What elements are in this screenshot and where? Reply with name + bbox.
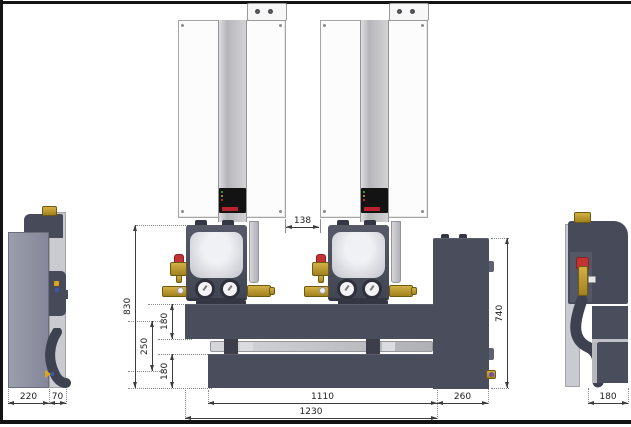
screw-icon — [421, 24, 424, 27]
screw-icon — [279, 210, 282, 213]
dimension-label: 260 — [437, 393, 488, 402]
led-icon — [221, 199, 223, 201]
pressure-gauge-icon — [362, 279, 382, 299]
dimension-label: 1230 — [185, 408, 437, 417]
screw-icon — [421, 210, 424, 213]
pump-window — [190, 232, 243, 278]
page-border-top — [0, 1, 631, 4]
dimension-label: 830 — [123, 225, 133, 388]
page-border-bottom — [0, 420, 631, 424]
unit-body — [8, 232, 49, 388]
dimension-label: 1110 — [208, 393, 437, 402]
dimension-label: 220 — [8, 393, 49, 402]
dimension-label: 180 — [160, 354, 170, 388]
screw-icon — [279, 24, 282, 27]
dimension-lower-pipe-offset: 180 — [172, 354, 173, 388]
dimension-label: 138 — [286, 217, 319, 226]
dimension-manifold-length: 1110 — [208, 403, 437, 404]
drain-fitting-cap — [489, 372, 494, 377]
dimension-label: 740 — [495, 238, 505, 388]
curved-pipe-icon — [45, 328, 71, 388]
pump-window — [332, 232, 385, 278]
dimension-label: 70 — [49, 393, 66, 402]
connection-pipe — [249, 221, 259, 283]
flue-box — [389, 3, 429, 21]
valve-knob-icon — [177, 287, 184, 294]
dimension-label: 180 — [588, 393, 628, 402]
manifold-upper-bar — [185, 304, 437, 339]
brass-stem — [318, 275, 324, 283]
brass-valve-icon — [170, 262, 187, 276]
pressure-gauge-icon — [195, 279, 215, 299]
pressure-gauge-icon — [220, 279, 240, 299]
brand-mark-blue — [51, 372, 54, 376]
dimension-cabinet-height: 740 — [507, 238, 508, 388]
dimension-label: 250 — [140, 321, 150, 371]
yellow-marker-icon — [54, 281, 59, 286]
led-icon — [363, 191, 365, 193]
pipe-sleeve — [382, 342, 395, 351]
brand-mark-icon — [45, 370, 54, 378]
pipe-connector — [224, 339, 238, 354]
dimension-cabinet-width: 260 — [437, 403, 488, 404]
dimension-assembly-height: 830 — [135, 225, 136, 388]
extension-line — [491, 388, 509, 389]
dimension-unit-depth: 220 — [8, 403, 49, 404]
led-icon — [363, 195, 365, 197]
brass-union-end — [411, 287, 417, 295]
page-border-left — [0, 0, 3, 424]
cabinet-tab — [489, 348, 494, 360]
extension-line — [628, 388, 629, 404]
brass-union-icon — [389, 285, 413, 297]
brass-fitting-icon — [42, 206, 57, 216]
pipe-sleeve — [240, 342, 253, 351]
led-icon — [363, 199, 365, 201]
flue-outlet-icon — [255, 9, 260, 14]
pipe-connector — [366, 339, 380, 354]
technical-drawing-page: 138 830 180 250 180 740 1110 260 1230 22… — [0, 0, 631, 427]
brass-fitting-icon — [574, 212, 591, 223]
dimension-upper-pipe-offset: 180 — [172, 304, 173, 339]
mid-box — [592, 306, 628, 339]
brand-logo — [222, 207, 238, 211]
led-icon — [221, 191, 223, 193]
connection-pipe — [391, 221, 401, 283]
manifold-lower-bar — [208, 354, 437, 388]
screw-icon — [181, 210, 184, 213]
dimension-pipe-spacing: 250 — [152, 321, 153, 371]
dimension-overall-length: 1230 — [185, 418, 437, 419]
brass-valve-icon — [578, 266, 588, 296]
flue-box — [247, 3, 287, 21]
dimension-rear-clearance: 70 — [49, 403, 66, 404]
extension-line — [320, 219, 321, 233]
brass-union-icon — [247, 285, 271, 297]
led-icon — [221, 195, 223, 197]
dimension-boiler-gap: 138 — [286, 227, 319, 228]
bottom-box — [597, 342, 628, 383]
valve-knob-icon — [319, 287, 326, 294]
dimension-base-depth: 180 — [588, 403, 628, 404]
extension-line — [128, 371, 164, 372]
cabinet-tab — [489, 261, 494, 272]
dimension-label: 180 — [160, 304, 170, 339]
extension-line — [66, 389, 67, 404]
blue-marker-icon — [55, 288, 59, 292]
brand-logo — [364, 207, 380, 211]
valve-lever-icon — [588, 276, 596, 283]
brass-union-end — [269, 287, 275, 295]
side-tab — [64, 290, 68, 299]
flue-outlet-icon — [410, 9, 415, 14]
flue-outlet-icon — [268, 9, 273, 14]
flue-outlet-icon — [397, 9, 402, 14]
screw-icon — [323, 210, 326, 213]
screw-icon — [323, 24, 326, 27]
extension-line — [128, 388, 212, 389]
pressure-gauge-icon — [337, 279, 357, 299]
extension-line — [136, 225, 188, 226]
brass-stem — [176, 275, 182, 283]
brass-valve-icon — [312, 262, 329, 276]
extension-line — [158, 339, 192, 340]
screw-icon — [181, 24, 184, 27]
end-cabinet — [433, 238, 489, 389]
